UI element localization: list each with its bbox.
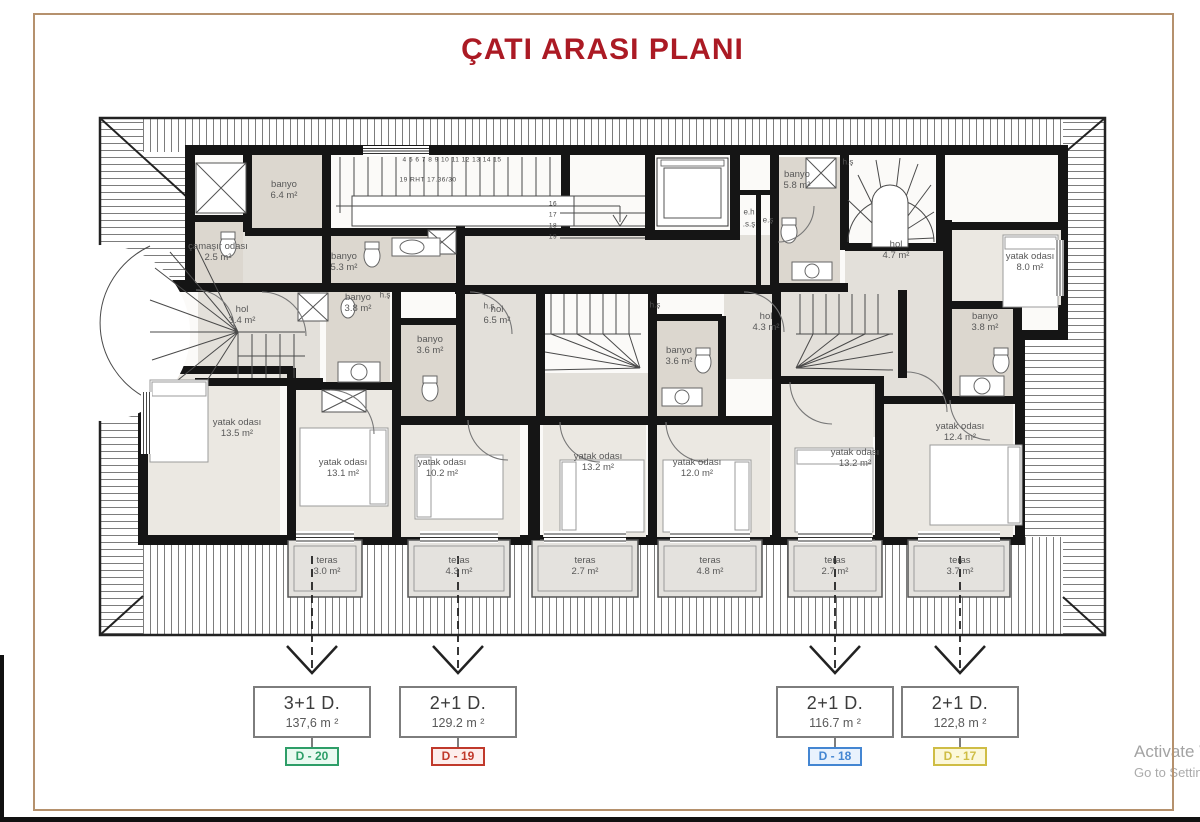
scan-edge-left xyxy=(0,655,4,822)
floor-plan-drawing xyxy=(0,0,1200,822)
scan-edge-bottom xyxy=(0,817,1200,822)
activate-watermark: Activate W Go to Settin xyxy=(1134,742,1200,780)
watermark-line1: Activate W xyxy=(1134,742,1200,762)
elevator xyxy=(657,158,728,226)
watermark-line2: Go to Settin xyxy=(1134,765,1200,780)
page-title: ÇATI ARASI PLANI xyxy=(0,33,1200,67)
page: { "title": "ÇATI ARASI PLANI", "watermar… xyxy=(0,0,1200,822)
